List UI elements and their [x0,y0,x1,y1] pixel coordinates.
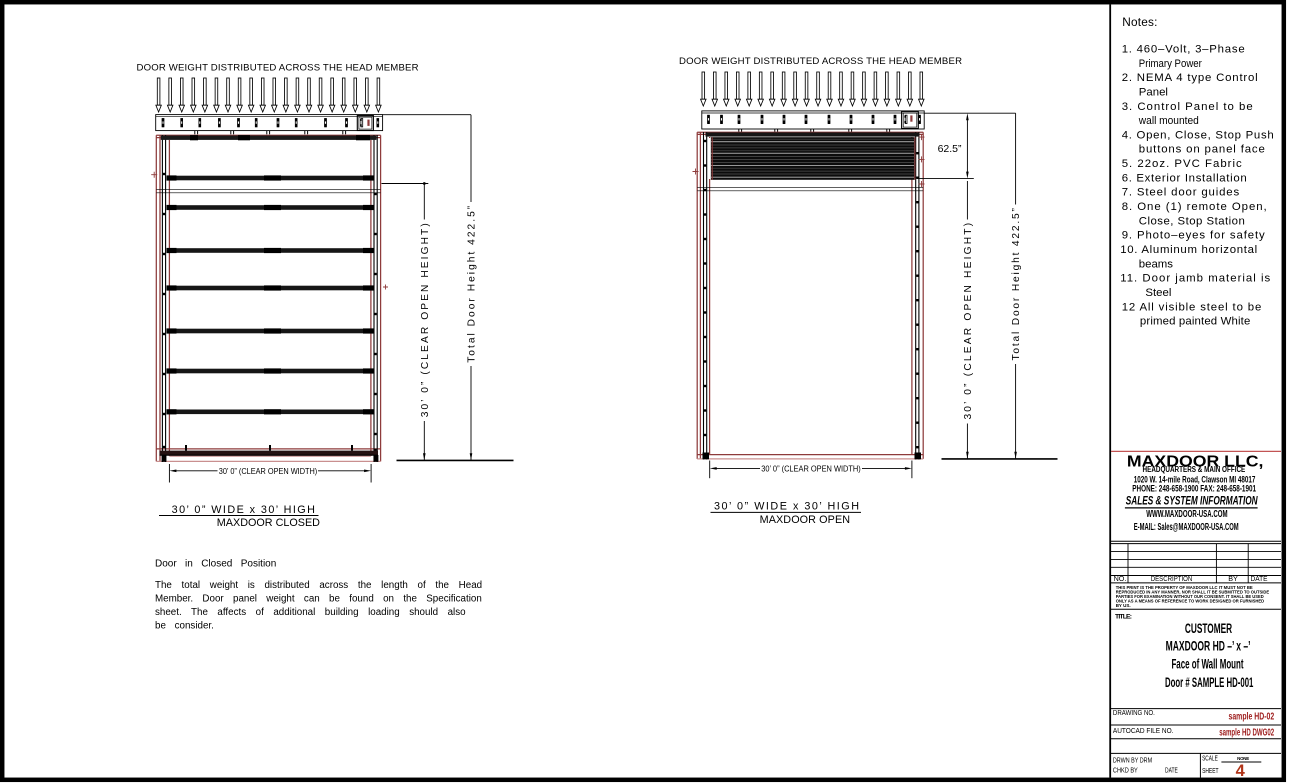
svg-text:ONLY AS A MEANS OF REFERENCE T: ONLY AS A MEANS OF REFERENCE TO WORK DES… [1116,599,1265,604]
svg-text:DRWN BY DRM: DRWN BY DRM [1113,756,1152,765]
svg-text:3. Control Panel to be: 3. Control Panel to be [1122,101,1253,113]
svg-text:6. Exterior Installation: 6. Exterior Installation [1122,172,1247,184]
svg-text:2. NEMA 4 type Control: 2. NEMA 4 type Control [1122,72,1258,84]
svg-text:SHEET: SHEET [1202,766,1219,775]
svg-text:4. Open, Close, Stop Push: 4. Open, Close, Stop Push [1122,129,1274,141]
svg-text:Door in Closed Position: Door in Closed Position [155,559,276,570]
svg-text:DESCRIPTION: DESCRIPTION [1151,574,1193,583]
svg-text:Total Door Height 422.5”: Total Door Height 422.5” [467,205,478,363]
svg-text:10. Aluminum horizontal: 10. Aluminum horizontal [1120,244,1257,256]
svg-text:DATE: DATE [1165,766,1178,775]
svg-text:SCALE: SCALE [1202,754,1218,763]
svg-text:Notes:: Notes: [1122,15,1157,29]
svg-text:WWW.MAXDOOR-USA.COM: WWW.MAXDOOR-USA.COM [1146,509,1227,520]
svg-text:buttons on panel face: buttons on panel face [1139,144,1265,156]
svg-text:30’ 0” (CLEAR OPEN WIDTH): 30’ 0” (CLEAR OPEN WIDTH) [761,465,861,474]
svg-text:HEADQUARTERS & MAIN OFFICE: HEADQUARTERS & MAIN OFFICE [1143,465,1246,474]
svg-text:NONE: NONE [1237,756,1249,761]
svg-text:The total weight is distribute: The total weight is distributed across t… [155,580,482,591]
svg-text:Primary Power: Primary Power [1139,58,1202,70]
svg-text:62.5”: 62.5” [938,143,962,155]
svg-text:8. One (1) remote Open,: 8. One (1) remote Open, [1122,201,1267,213]
svg-text:AUTOCAD FILE NO.: AUTOCAD FILE NO. [1113,726,1174,735]
svg-text:beams: beams [1139,258,1173,270]
svg-text:sample HD-02: sample HD-02 [1229,711,1275,722]
svg-text:1. 460–Volt, 3–Phase: 1. 460–Volt, 3–Phase [1122,44,1245,56]
svg-text:primed painted White: primed painted White [1140,316,1250,328]
svg-text:30’ 0” (CLEAR OPEN HEIGHT): 30’ 0” (CLEAR OPEN HEIGHT) [963,223,974,420]
svg-text:DATE: DATE [1251,574,1268,583]
svg-text:BY: BY [1228,574,1238,583]
svg-text:TITLE:: TITLE: [1115,614,1132,621]
svg-text:Face of Wall Mount: Face of Wall Mount [1171,657,1243,672]
svg-text:DRAWING NO.: DRAWING NO. [1113,708,1155,717]
svg-text:Close, Stop Station: Close, Stop Station [1139,215,1245,227]
svg-text:DOOR WEIGHT DISTRIBUTED ACROSS: DOOR WEIGHT DISTRIBUTED ACROSS THE HEAD … [679,56,962,67]
svg-text:CUSTOMER: CUSTOMER [1185,621,1232,636]
svg-text:MAXDOOR OPEN: MAXDOOR OPEN [760,514,851,526]
svg-text:be consider.: be consider. [155,620,214,631]
svg-text:30’ 0” WIDE x 30’ HIGH: 30’ 0” WIDE x 30’ HIGH [172,504,315,516]
svg-text:Member. Door panel weight can: Member. Door panel weight can be found o… [155,594,482,605]
svg-text:12 All visible steel to be: 12 All visible steel to be [1122,301,1262,313]
svg-text:Total Door Height 422.5”: Total Door Height 422.5” [1011,207,1022,360]
svg-text:sheet. The affects of addition: sheet. The affects of additional buildin… [155,607,466,618]
svg-text:4: 4 [1236,762,1246,780]
svg-text:PHONE: 248-658-1900 FAX: 248-6: PHONE: 248-658-1900 FAX: 248-658-1901 [1132,483,1256,493]
svg-text:MAXDOOR CLOSED: MAXDOOR CLOSED [217,517,320,529]
svg-text:wall mounted: wall mounted [1138,115,1199,127]
svg-text:7. Steel door guides: 7. Steel door guides [1122,187,1240,199]
svg-text:SALES & SYSTEM INFORMATION: SALES & SYSTEM INFORMATION [1126,494,1258,508]
svg-text:5. 22oz. PVC Fabric: 5. 22oz. PVC Fabric [1122,158,1242,170]
svg-text:Door # SAMPLE HD-001: Door # SAMPLE HD-001 [1165,675,1254,690]
svg-text:9. Photo–eyes for safety: 9. Photo–eyes for safety [1122,230,1265,242]
svg-text:11. Door jamb material is: 11. Door jamb material is [1120,273,1270,285]
svg-text:30’ 0” WIDE x 30’ HIGH: 30’ 0” WIDE x 30’ HIGH [714,501,859,513]
svg-text:E-MAIL: Sales@MAXDOOR-USA.COM: E-MAIL: Sales@MAXDOOR-USA.COM [1134,522,1239,533]
svg-text:BY US.: BY US. [1116,603,1131,608]
svg-text:30’ 0” (CLEAR OPEN WIDTH): 30’ 0” (CLEAR OPEN WIDTH) [219,467,318,476]
svg-text:Steel: Steel [1145,287,1171,299]
svg-text:sample HD DWG02: sample HD DWG02 [1219,728,1274,739]
svg-text:CHKD BY: CHKD BY [1113,766,1138,775]
svg-text:NO.: NO. [1114,574,1127,583]
svg-text:MAXDOOR HD –’ x –’: MAXDOOR HD –’ x –’ [1166,639,1251,654]
svg-text:DOOR WEIGHT DISTRIBUTED ACROSS: DOOR WEIGHT DISTRIBUTED ACROSS THE HEAD … [137,62,419,73]
svg-text:Panel: Panel [1139,86,1168,98]
svg-text:30’ 0” (CLEAR OPEN HEIGHT): 30’ 0” (CLEAR OPEN HEIGHT) [420,223,431,417]
